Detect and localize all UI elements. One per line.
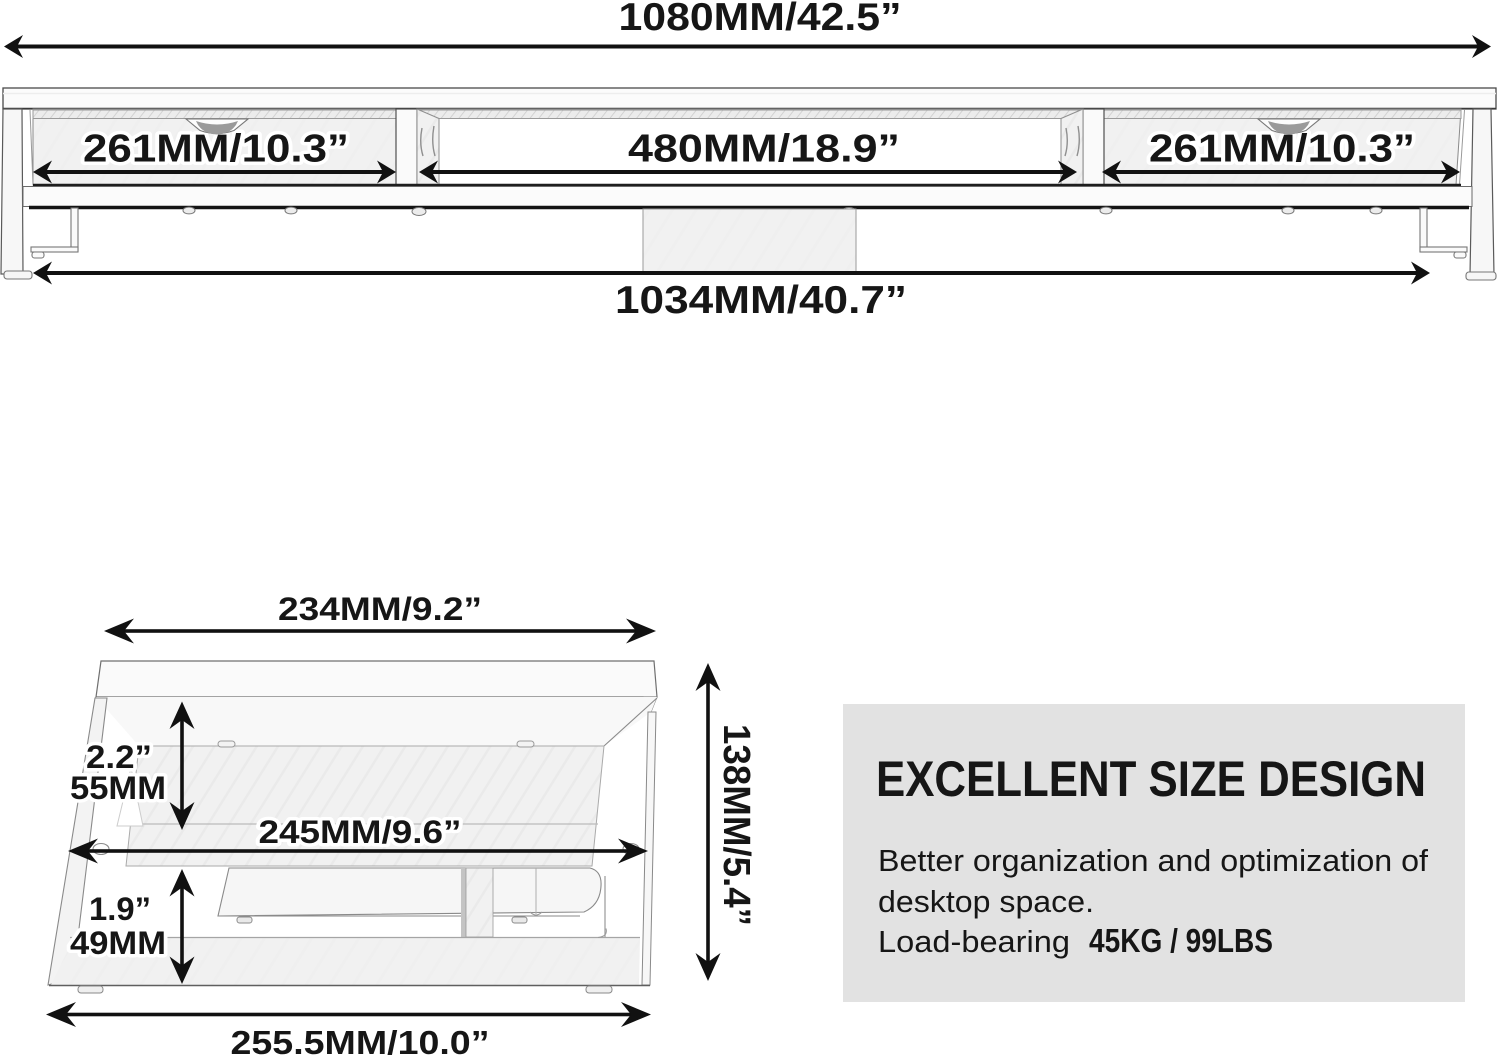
svg-text:138MM/5.4”: 138MM/5.4”	[715, 724, 757, 926]
svg-text:261MM/10.3”: 261MM/10.3”	[1149, 128, 1415, 171]
svg-text:55MM: 55MM	[70, 770, 166, 806]
svg-text:Better organization and optimi: Better organization and optimization of	[878, 843, 1428, 878]
svg-text:EXCELLENT SIZE DESIGN: EXCELLENT SIZE DESIGN	[876, 751, 1426, 807]
svg-text:desktop space.: desktop space.	[878, 884, 1094, 919]
svg-text:49MM: 49MM	[70, 925, 166, 961]
svg-text:Load-bearing: Load-bearing	[878, 924, 1070, 959]
svg-text:245MM/9.6”: 245MM/9.6”	[259, 814, 462, 850]
svg-text:45KG / 99LBS: 45KG / 99LBS	[1089, 922, 1273, 959]
svg-text:1080MM/42.5”: 1080MM/42.5”	[619, 0, 902, 39]
svg-text:1.9”: 1.9”	[89, 891, 151, 927]
svg-text:234MM/9.2”: 234MM/9.2”	[278, 591, 482, 627]
svg-text:1034MM/40.7”: 1034MM/40.7”	[615, 279, 907, 322]
svg-text:480MM/18.9”: 480MM/18.9”	[628, 128, 900, 171]
svg-text:255.5MM/10.0”: 255.5MM/10.0”	[231, 1024, 490, 1058]
